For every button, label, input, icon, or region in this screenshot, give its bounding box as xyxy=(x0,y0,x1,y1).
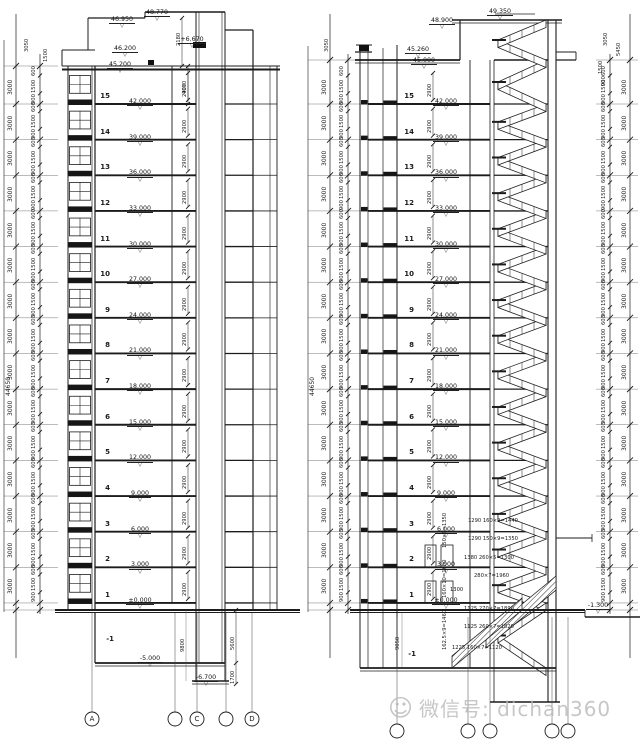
dim-label: 600 xyxy=(340,529,345,539)
dim-label: 1500 xyxy=(602,471,607,484)
dim-label: 44650 xyxy=(310,377,316,396)
level-marker-icon: ▽ xyxy=(118,178,162,182)
dim-label: 600 xyxy=(32,351,37,361)
stair-dim-label: 160×10=1600 xyxy=(443,560,448,598)
stair-dim-label: 150×9=1350 xyxy=(443,513,448,548)
floor-number-label: 14 xyxy=(96,129,110,136)
dim-label: 3000 xyxy=(622,151,628,166)
dim-label: 1500 xyxy=(32,436,37,449)
dim-label: 3000 xyxy=(322,472,328,487)
dim-label: 3000 xyxy=(322,258,328,273)
dim-label: 2900 xyxy=(428,262,433,275)
dim-label: 2900 xyxy=(428,369,433,382)
level-label: -5.000▽ xyxy=(128,647,172,667)
floor-number-label: 4 xyxy=(400,485,414,492)
dim-label: 1500 xyxy=(32,329,37,342)
dim-label: 600 xyxy=(340,66,345,76)
dim-label: 5450 xyxy=(617,43,622,56)
dim-label: 600 xyxy=(32,458,37,468)
dim-label: 1500 xyxy=(602,507,607,520)
dim-label: 3000 xyxy=(8,436,14,451)
level-marker-icon: ▽ xyxy=(424,249,468,253)
floor-number-label: 5 xyxy=(96,449,110,456)
level-label: +6.670▽ xyxy=(170,28,214,48)
dim-label: 3000 xyxy=(322,187,328,202)
level-marker-icon: ▽ xyxy=(118,391,162,395)
dim-label: 2900 xyxy=(183,262,188,275)
dim-label: 2900 xyxy=(183,369,188,382)
floor-number-label: 8 xyxy=(400,342,414,349)
floor-level-label: 30.000▽ xyxy=(118,233,162,253)
dim-label: 1500 xyxy=(602,115,607,128)
dim-label: 5600 xyxy=(231,637,236,650)
dim-label: 1500 xyxy=(32,79,37,92)
floor-level-label: 3.000▽ xyxy=(118,553,162,573)
dim-label: 1500 xyxy=(32,186,37,199)
dim-label: 2900 xyxy=(183,333,188,346)
dim-label: 600 xyxy=(602,529,607,539)
dim-label: 3000 xyxy=(8,472,14,487)
dim-label: 600 xyxy=(602,494,607,504)
dim-label: 3050 xyxy=(604,33,609,46)
floor-level-label: 24.000▽ xyxy=(118,304,162,324)
level-marker-icon: ▽ xyxy=(118,249,162,253)
floor-level-label: 6.000▽ xyxy=(118,518,162,538)
dim-label: 1500 xyxy=(602,329,607,342)
dim-label: 600 xyxy=(602,458,607,468)
dim-label: 1500 xyxy=(340,257,345,270)
floor-level-label: 9.000▽ xyxy=(118,482,162,502)
level-marker-icon: ▽ xyxy=(402,65,446,69)
dim-label: 3000 xyxy=(8,258,14,273)
dim-label: 3000 xyxy=(622,507,628,522)
dim-label: 600 xyxy=(340,422,345,432)
floor-number-label: 7 xyxy=(96,378,110,385)
level-marker-icon: ▽ xyxy=(424,427,468,431)
level-marker-icon: ▽ xyxy=(118,142,162,146)
dim-label: 900 xyxy=(602,76,607,86)
dim-label: 2900 xyxy=(183,476,188,489)
dim-label: 600 xyxy=(340,494,345,504)
dim-label: 3000 xyxy=(622,294,628,309)
dim-label: 1500 xyxy=(32,222,37,235)
floor-level-label: 12.000▽ xyxy=(118,446,162,466)
floor-number-label: 3 xyxy=(400,521,414,528)
dim-label: 1500 xyxy=(340,329,345,342)
floor-number-label: 11 xyxy=(96,236,110,243)
dim-label: 600 xyxy=(32,244,37,254)
dim-label: 600 xyxy=(340,137,345,147)
dim-label: 600 xyxy=(602,316,607,326)
dim-label: 600 xyxy=(32,102,37,112)
level-marker-icon: ▽ xyxy=(98,69,142,73)
dim-label: 900 xyxy=(340,593,345,603)
level-marker-icon: ▽ xyxy=(424,605,468,609)
level-marker-icon: ▽ xyxy=(118,570,162,574)
level-marker-icon: ▽ xyxy=(118,320,162,324)
dim-label: 3000 xyxy=(322,436,328,451)
dim-label: 2900 xyxy=(183,583,188,596)
wechat-logo-icon: ☺ xyxy=(388,696,414,720)
level-label: -1.300▽ xyxy=(576,594,620,614)
dim-label: 2900 xyxy=(428,583,433,596)
dim-label: 600 xyxy=(340,565,345,575)
dim-label: 2900 xyxy=(183,405,188,418)
floor-level-label: 39.000▽ xyxy=(118,126,162,146)
floor-number-label: -1 xyxy=(402,651,416,658)
floor-number-label: 2 xyxy=(400,556,414,563)
floor-number-label: 8 xyxy=(96,342,110,349)
dim-label: 1500 xyxy=(340,222,345,235)
dim-label: 3000 xyxy=(622,222,628,237)
dim-label: 600 xyxy=(32,565,37,575)
dim-label: 2900 xyxy=(183,511,188,524)
grid-bubble-label: A xyxy=(87,716,97,723)
dim-label: 1500 xyxy=(602,364,607,377)
floor-number-label: 9 xyxy=(400,307,414,314)
dim-label: 2900 xyxy=(428,226,433,239)
dim-label: 1500 xyxy=(340,543,345,556)
dim-label: 3000 xyxy=(8,115,14,130)
dim-label: 3000 xyxy=(622,472,628,487)
dim-label: 600 xyxy=(340,351,345,361)
dim-label: 1500 xyxy=(340,115,345,128)
dim-label: 2900 xyxy=(428,155,433,168)
level-marker-icon: ▽ xyxy=(118,463,162,467)
level-label: 48.900▽ xyxy=(420,9,464,29)
dim-label: 3000 xyxy=(322,365,328,380)
dim-label: 1500 xyxy=(340,364,345,377)
floor-level-label: ±0.000▽ xyxy=(118,589,162,609)
floor-number-label: 13 xyxy=(96,164,110,171)
dim-label: 600 xyxy=(340,458,345,468)
dim-label: 3000 xyxy=(8,543,14,558)
dim-label: 600 xyxy=(340,316,345,326)
dim-label: 2900 xyxy=(183,84,188,97)
dim-label: 3000 xyxy=(322,329,328,344)
dim-label: 600 xyxy=(32,137,37,147)
dim-label: 600 xyxy=(32,66,37,76)
floor-number-label: 12 xyxy=(96,200,110,207)
floor-level-label: 42.000▽ xyxy=(118,90,162,110)
dim-label: 3000 xyxy=(322,222,328,237)
dim-label: 600 xyxy=(602,351,607,361)
dim-label: 3000 xyxy=(622,187,628,202)
dim-label: 3000 xyxy=(8,80,14,95)
dim-label: 600 xyxy=(602,173,607,183)
dim-label: 600 xyxy=(32,173,37,183)
dim-label: 3050 xyxy=(25,39,30,52)
level-marker-icon: ▽ xyxy=(118,534,162,538)
level-marker-icon: ▽ xyxy=(100,24,144,28)
level-marker-icon: ▽ xyxy=(118,427,162,431)
dim-label: 3000 xyxy=(8,294,14,309)
dim-label: 1500 xyxy=(32,257,37,270)
dim-label: 600 xyxy=(340,280,345,290)
floor-level-label: 15.000▽ xyxy=(118,411,162,431)
floor-level-label: 36.000▽ xyxy=(118,161,162,181)
level-marker-icon: ▽ xyxy=(424,213,468,217)
dim-label: 600 xyxy=(32,422,37,432)
level-marker-icon: ▽ xyxy=(424,320,468,324)
dim-label: 1500 xyxy=(32,578,37,591)
dim-label: 600 xyxy=(602,280,607,290)
dim-label: 600 xyxy=(32,316,37,326)
floor-number-label: 14 xyxy=(400,129,414,136)
dim-label: 900 xyxy=(32,593,37,603)
dim-label: 2900 xyxy=(428,84,433,97)
floor-number-label: 3 xyxy=(96,521,110,528)
level-marker-icon: ▽ xyxy=(424,178,468,182)
dim-label: 2900 xyxy=(183,191,188,204)
dim-label: 3000 xyxy=(322,579,328,594)
dim-label: 3000 xyxy=(622,115,628,130)
stair-dim-label: 1300 xyxy=(450,588,463,593)
dim-label: 3000 xyxy=(8,222,14,237)
drawing-canvas: 3000900150060030009001500600300090015006… xyxy=(0,0,640,739)
dim-label: 1500 xyxy=(340,471,345,484)
dim-label: 1500 xyxy=(340,293,345,306)
level-marker-icon: ▽ xyxy=(118,213,162,217)
dim-label: 3000 xyxy=(622,80,628,95)
dim-label: 2900 xyxy=(183,119,188,132)
level-marker-icon: ▽ xyxy=(118,356,162,360)
stair-dim-label: 280×7=1960 xyxy=(474,574,509,579)
dim-label: 3000 xyxy=(8,579,14,594)
dim-label: 1500 xyxy=(32,115,37,128)
dim-label: 1500 xyxy=(602,543,607,556)
level-marker-icon: ▽ xyxy=(170,44,214,48)
floor-number-label: 6 xyxy=(96,414,110,421)
dim-label: 44650 xyxy=(6,377,12,396)
level-marker-icon: ▽ xyxy=(424,106,468,110)
dim-label: 3000 xyxy=(622,579,628,594)
dim-label: 1500 xyxy=(599,61,604,74)
dim-label: 1500 xyxy=(602,293,607,306)
dim-label: 1500 xyxy=(602,400,607,413)
dim-label: 1500 xyxy=(340,186,345,199)
dim-label: 600 xyxy=(340,102,345,112)
dim-label: 1500 xyxy=(32,293,37,306)
dim-label: 2900 xyxy=(428,511,433,524)
floor-level-label: 18.000▽ xyxy=(118,375,162,395)
level-label: 46.950▽ xyxy=(100,8,144,28)
level-marker-icon: ▽ xyxy=(118,605,162,609)
floor-number-label: 12 xyxy=(400,200,414,207)
dim-label: 3000 xyxy=(622,543,628,558)
level-marker-icon: ▽ xyxy=(424,498,468,502)
stair-dim-label: 1380 260×5=1300 xyxy=(464,556,514,561)
dim-label: 3000 xyxy=(322,80,328,95)
level-label: 45.000▽ xyxy=(402,49,446,69)
floor-number-label: 7 xyxy=(400,378,414,385)
dim-label: 1500 xyxy=(32,471,37,484)
dim-label: 9050 xyxy=(396,637,401,650)
dim-label: 600 xyxy=(340,387,345,397)
floor-number-label: 9 xyxy=(96,307,110,314)
dim-label: 1500 xyxy=(32,364,37,377)
dim-label: 3000 xyxy=(322,294,328,309)
level-marker-icon: ▽ xyxy=(424,463,468,467)
dim-label: 1500 xyxy=(602,578,607,591)
level-marker-icon: ▽ xyxy=(184,682,228,686)
dim-label: 3000 xyxy=(622,258,628,273)
dim-label: 1500 xyxy=(602,186,607,199)
floor-level-label: 21.000▽ xyxy=(118,339,162,359)
stair-dim-label: 1225 160×7=1120 xyxy=(452,646,502,651)
stair-dim-label: 1125 270×7=1890 xyxy=(464,607,514,612)
dim-label: 3000 xyxy=(622,436,628,451)
level-label: 49.350▽ xyxy=(478,0,522,20)
dim-label: 2900 xyxy=(428,440,433,453)
floor-number-label: 15 xyxy=(96,93,110,100)
dim-label: 3000 xyxy=(8,151,14,166)
dim-label: 3000 xyxy=(322,543,328,558)
level-marker-icon: ▽ xyxy=(420,25,464,29)
floor-level-label: 33.000▽ xyxy=(118,197,162,217)
level-marker-icon: ▽ xyxy=(118,284,162,288)
floor-number-label: 1 xyxy=(400,592,414,599)
dim-label: 1500 xyxy=(602,436,607,449)
floor-number-label: 4 xyxy=(96,485,110,492)
stair-dim-label: 1290 160×9=1440 xyxy=(468,519,518,524)
dim-label: 3000 xyxy=(8,187,14,202)
dim-label: 1500 xyxy=(340,507,345,520)
dim-label: 600 xyxy=(602,387,607,397)
dim-label: 2900 xyxy=(428,333,433,346)
dim-label: 600 xyxy=(32,209,37,219)
dim-label: 600 xyxy=(602,102,607,112)
floor-level-label: 27.000▽ xyxy=(118,268,162,288)
grid-bubble-label: C xyxy=(192,716,202,723)
stair-dim-label: 1290 150×9=1350 xyxy=(468,537,518,542)
dim-label: 600 xyxy=(602,137,607,147)
level-marker-icon: ▽ xyxy=(118,498,162,502)
level-marker-icon: ▽ xyxy=(478,16,522,20)
dim-label: 3000 xyxy=(8,507,14,522)
dim-label: 2900 xyxy=(183,440,188,453)
dim-label: 2900 xyxy=(428,405,433,418)
dim-label: 1500 xyxy=(32,507,37,520)
dim-label: 600 xyxy=(602,422,607,432)
dim-label: 2900 xyxy=(428,191,433,204)
dim-label: 3000 xyxy=(322,507,328,522)
dim-label: 600 xyxy=(602,244,607,254)
dim-label: 1500 xyxy=(340,578,345,591)
floor-number-label: 6 xyxy=(400,414,414,421)
dim-label: 2900 xyxy=(183,547,188,560)
dim-label: 3000 xyxy=(622,329,628,344)
dim-label: 600 xyxy=(602,565,607,575)
floor-number-label: 13 xyxy=(400,164,414,171)
level-marker-icon: ▽ xyxy=(128,663,172,667)
dim-label: 600 xyxy=(340,209,345,219)
level-marker-icon: ▽ xyxy=(424,391,468,395)
dim-label: 1500 xyxy=(32,543,37,556)
stair-dim-label: 162.5×9=1460 xyxy=(443,610,448,650)
dim-label: 3000 xyxy=(322,400,328,415)
dim-label: 1500 xyxy=(602,257,607,270)
dim-label: 3000 xyxy=(322,151,328,166)
grid-bubble-label: D xyxy=(247,716,257,723)
dim-label: 600 xyxy=(32,494,37,504)
dim-label: 2900 xyxy=(428,476,433,489)
dim-label: 3000 xyxy=(8,400,14,415)
floor-number-label: 2 xyxy=(96,556,110,563)
floor-number-label: 15 xyxy=(400,93,414,100)
dim-label: 600 xyxy=(340,173,345,183)
dim-label: 2900 xyxy=(183,298,188,311)
dim-label: 3000 xyxy=(622,400,628,415)
dim-label: 1500 xyxy=(602,222,607,235)
floor-number-label: 11 xyxy=(400,236,414,243)
dim-label: 3000 xyxy=(8,329,14,344)
dim-label: 600 xyxy=(340,244,345,254)
level-label: 45.200▽ xyxy=(98,53,142,73)
dim-label: 1500 xyxy=(32,400,37,413)
level-label: -6.700▽ xyxy=(184,666,228,686)
dim-label: 3000 xyxy=(622,365,628,380)
level-marker-icon: ▽ xyxy=(576,610,620,614)
floor-number-label: 10 xyxy=(96,271,110,278)
dim-label: 2900 xyxy=(183,226,188,239)
dim-label: 1500 xyxy=(340,436,345,449)
dim-label: 600 xyxy=(602,209,607,219)
dim-label: 2900 xyxy=(428,298,433,311)
dim-label: 600 xyxy=(32,529,37,539)
dim-label: 1500 xyxy=(340,151,345,164)
dim-label: 1700 xyxy=(231,671,236,684)
dim-label: 600 xyxy=(32,280,37,290)
dim-label: 600 xyxy=(32,387,37,397)
floor-number-label: 5 xyxy=(400,449,414,456)
level-marker-icon: ▽ xyxy=(424,356,468,360)
level-marker-icon: ▽ xyxy=(424,142,468,146)
dim-label: 2900 xyxy=(183,155,188,168)
dim-label: 3000 xyxy=(322,115,328,130)
dim-label: 1500 xyxy=(44,49,49,62)
floor-number-label: -1 xyxy=(100,636,114,643)
dim-label: 1500 xyxy=(340,79,345,92)
watermark: ☺ 微信号: dichan360 xyxy=(388,693,611,722)
dim-label: 3050 xyxy=(325,39,330,52)
floor-number-label: 10 xyxy=(400,271,414,278)
floor-number-label: 1 xyxy=(96,592,110,599)
dim-label: 2900 xyxy=(428,119,433,132)
dim-label: 1500 xyxy=(340,400,345,413)
level-marker-icon: ▽ xyxy=(118,106,162,110)
section-linework xyxy=(0,0,640,739)
dim-label: 9800 xyxy=(181,639,186,652)
dim-label: 1500 xyxy=(32,151,37,164)
level-marker-icon: ▽ xyxy=(424,284,468,288)
watermark-text: 微信号: dichan360 xyxy=(419,693,611,722)
dim-label: 2900 xyxy=(428,547,433,560)
dim-label: 1500 xyxy=(602,151,607,164)
stair-dim-label: 1125 260×7=1820 xyxy=(464,625,514,630)
